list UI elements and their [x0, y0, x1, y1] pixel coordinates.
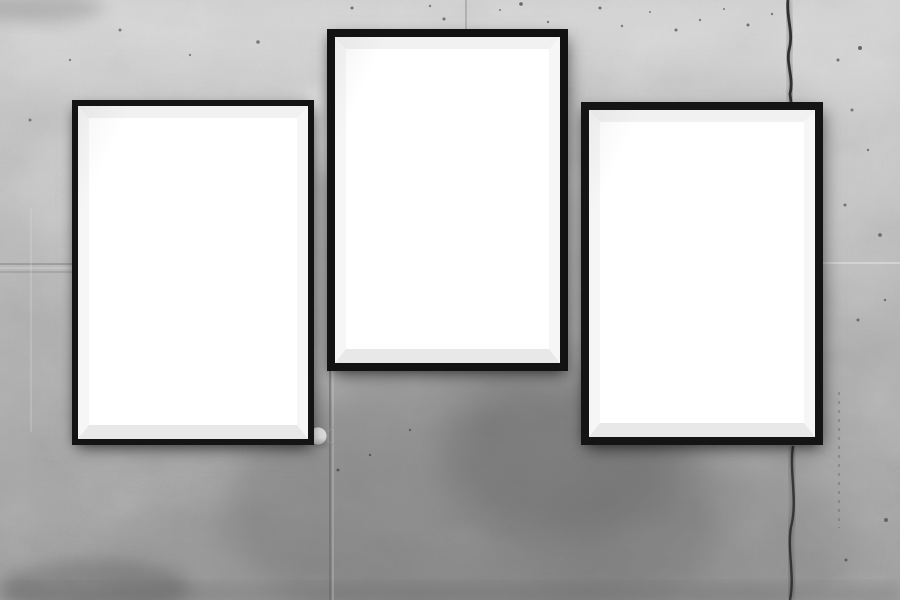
picture-frame-right: [581, 102, 823, 445]
blank-canvas-right: [589, 110, 815, 437]
wall-bottom-dark-band: [0, 586, 900, 600]
picture-frame-center: [327, 29, 568, 371]
concrete-wall-scene: [0, 0, 900, 600]
vertical-crack-above-right-frame: [788, 0, 791, 102]
vertical-crack-below-right-frame: [790, 446, 794, 600]
blank-canvas-center: [335, 37, 560, 363]
blank-canvas-left: [78, 106, 308, 439]
picture-frame-left: [72, 100, 314, 445]
